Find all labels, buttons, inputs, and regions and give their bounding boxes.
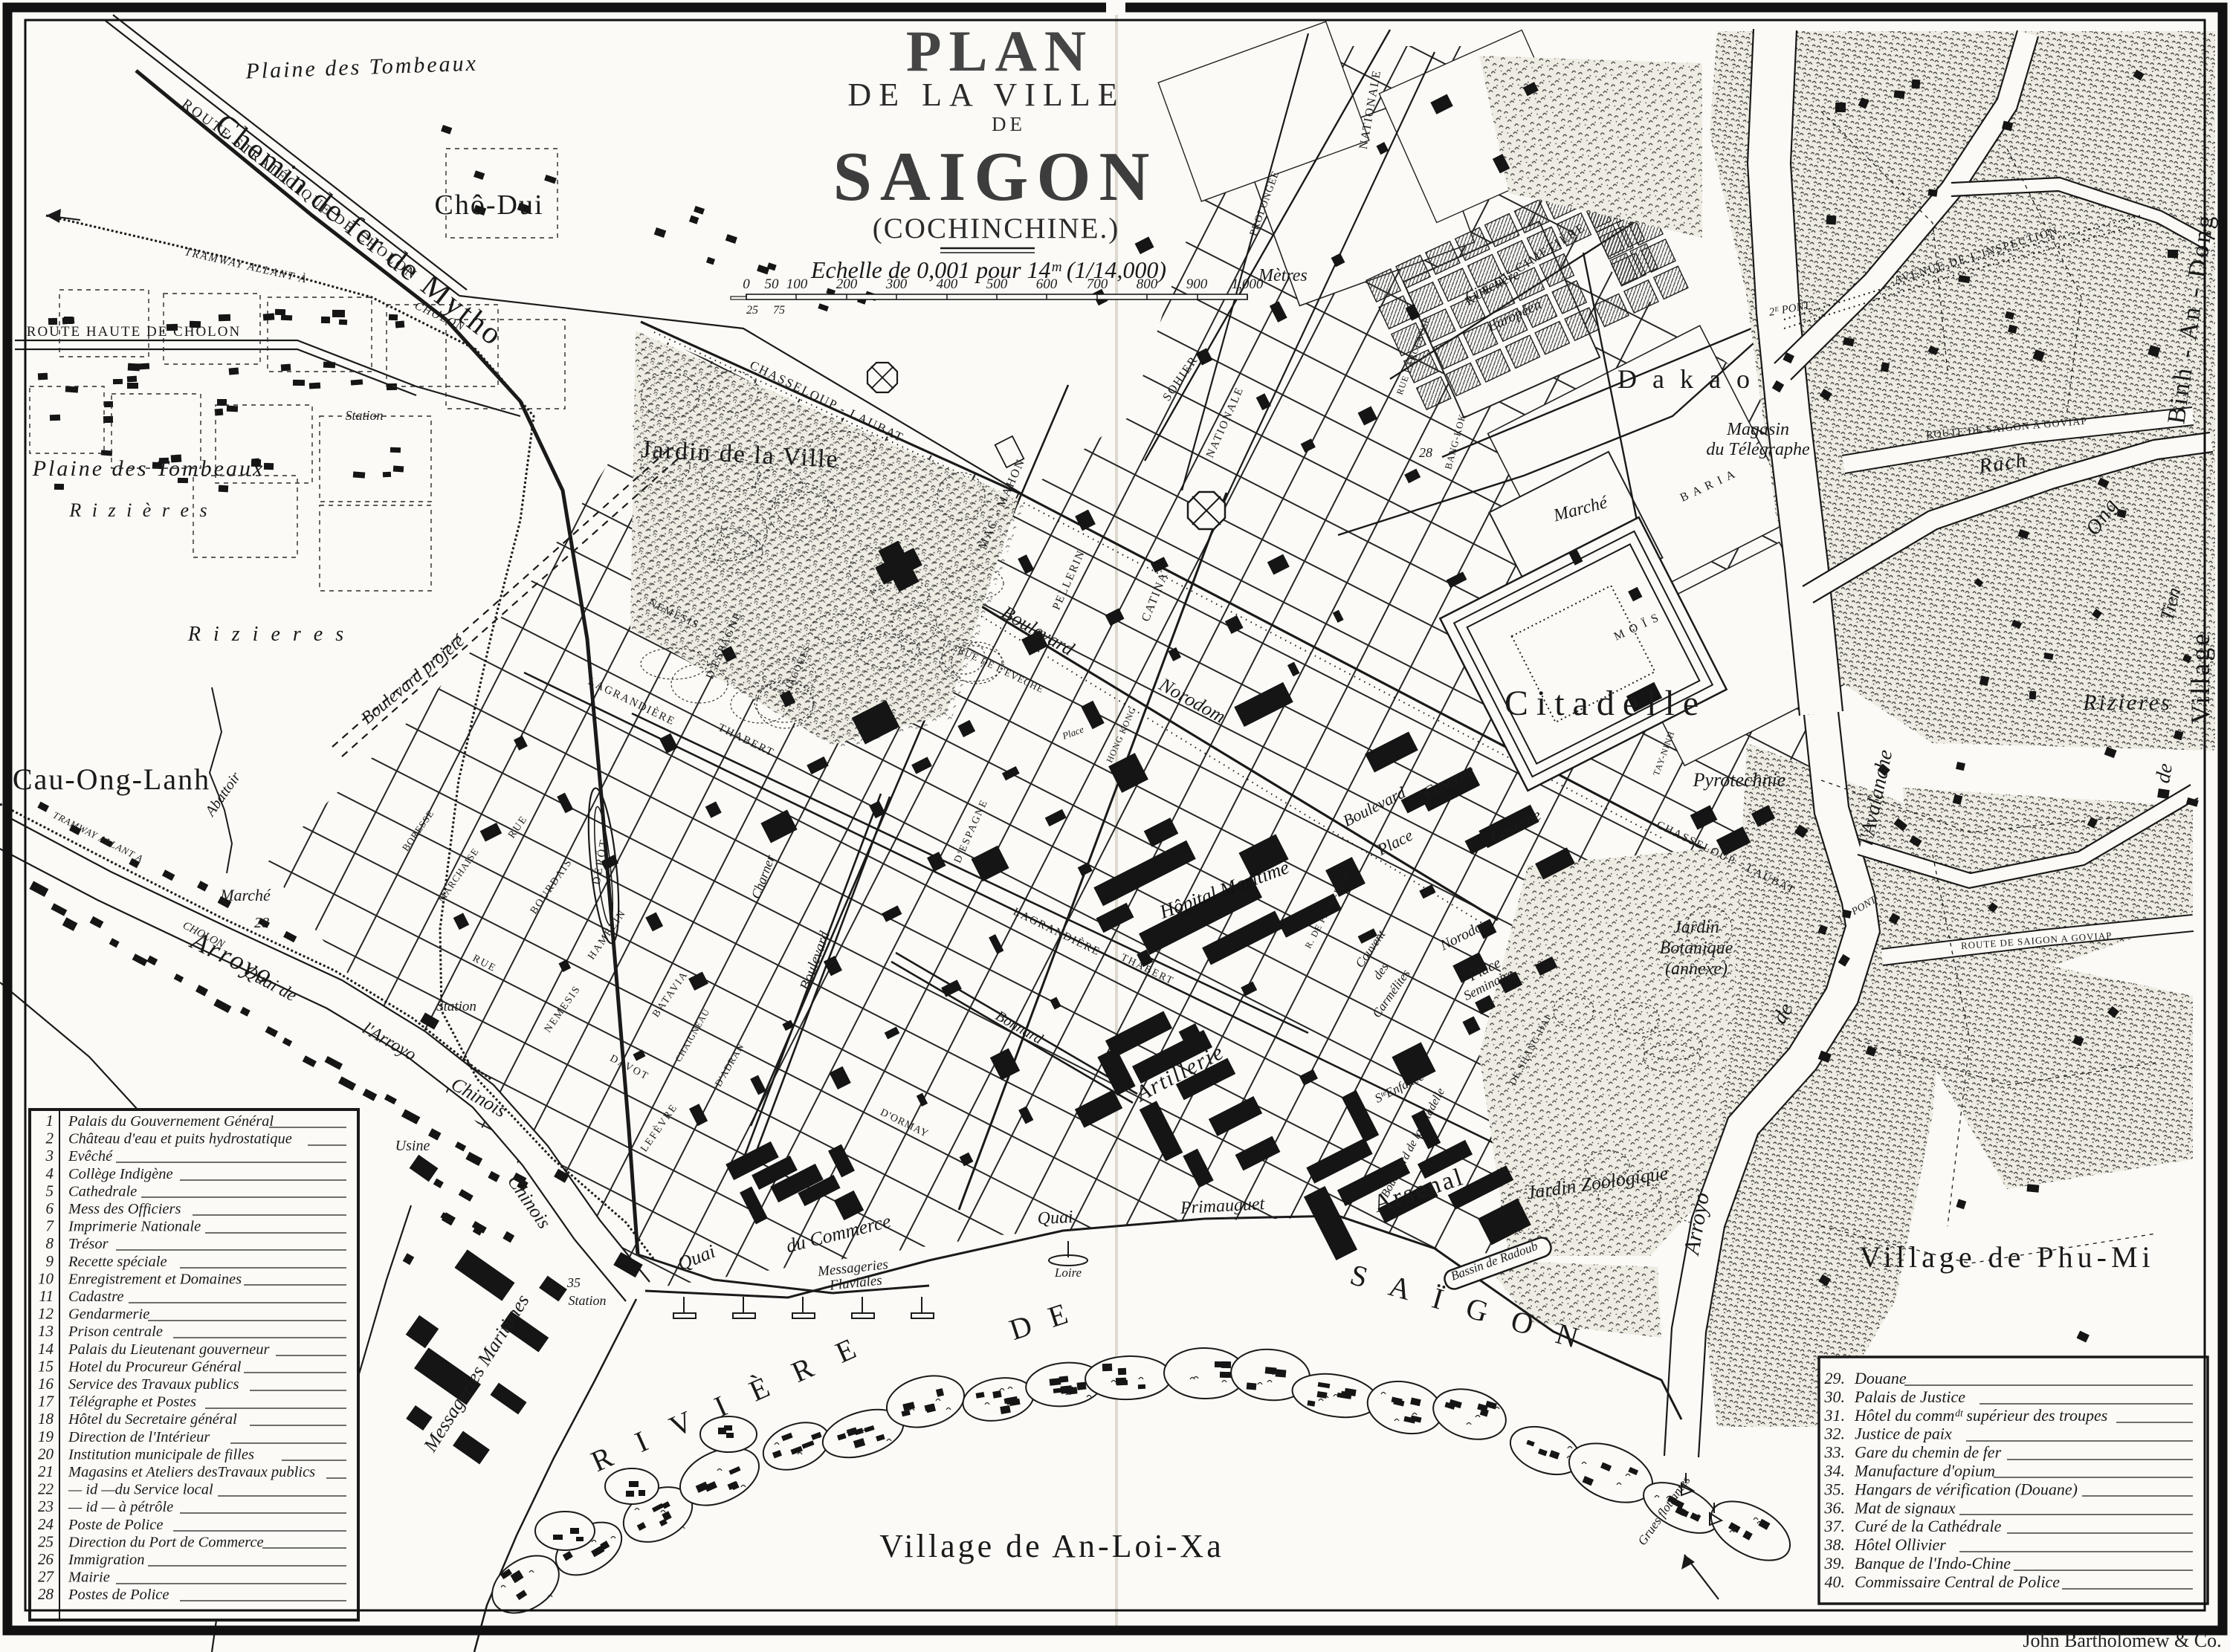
svg-text:5: 5 — [46, 1182, 54, 1199]
svg-text:12: 12 — [38, 1305, 54, 1323]
svg-text:17: 17 — [38, 1393, 55, 1410]
svg-text:700: 700 — [1087, 276, 1108, 292]
svg-text:John Bartholomew & Co.: John Bartholomew & Co. — [2023, 1630, 2221, 1651]
svg-text:16: 16 — [38, 1375, 54, 1393]
svg-text:Village de Phu-Mi: Village de Phu-Mi — [1859, 1240, 2154, 1274]
svg-text:Usine: Usine — [395, 1138, 430, 1154]
svg-text:Hôtel Ollivier: Hôtel Ollivier — [1854, 1535, 1946, 1554]
svg-text:100: 100 — [786, 276, 808, 292]
svg-text:Hôtel du Secretaire général: Hôtel du Secretaire général — [68, 1411, 237, 1428]
svg-text:D a k a o: D a k a o — [1617, 364, 1754, 394]
svg-text:— id —du Service local: — id —du Service local — [68, 1482, 213, 1498]
svg-text:Loire: Loire — [1054, 1266, 1082, 1280]
svg-text:38.: 38. — [1824, 1535, 1846, 1554]
svg-text:32.: 32. — [1824, 1425, 1846, 1443]
svg-text:28: 28 — [38, 1585, 54, 1603]
svg-text:Plaine des Tombeaux: Plaine des Tombeaux — [32, 456, 265, 481]
svg-text:30.: 30. — [1824, 1387, 1846, 1406]
svg-text:39.: 39. — [1824, 1554, 1846, 1572]
svg-text:Village de An-Loi-Xa: Village de An-Loi-Xa — [879, 1528, 1224, 1564]
svg-text:Palais du Gouvernement Général: Palais du Gouvernement Général — [68, 1113, 274, 1130]
svg-text:Village: Village — [2185, 632, 2215, 725]
svg-text:7: 7 — [46, 1217, 55, 1235]
svg-text:Service des Travaux publics: Service des Travaux publics — [68, 1376, 239, 1393]
svg-text:Postes de Police: Postes de Police — [68, 1587, 169, 1603]
svg-text:(annexe): (annexe) — [1665, 959, 1728, 979]
svg-text:Station: Station — [568, 1293, 606, 1308]
svg-text:Rizieres: Rizieres — [2082, 690, 2172, 715]
svg-text:PLAN: PLAN — [906, 19, 1093, 83]
svg-text:Télégraphe et Postes: Télégraphe et Postes — [68, 1394, 196, 1410]
svg-text:Curé de la Cathédrale: Curé de la Cathédrale — [1855, 1517, 2002, 1535]
svg-text:Palais du Lieutenant gouverneu: Palais du Lieutenant gouverneur — [68, 1341, 270, 1358]
svg-text:4: 4 — [46, 1165, 54, 1182]
svg-text:Poste de Police: Poste de Police — [68, 1517, 164, 1533]
svg-text:Evêché: Evêché — [68, 1148, 113, 1165]
svg-text:Hotel du Procureur Général: Hotel du Procureur Général — [68, 1358, 242, 1375]
svg-text:28: 28 — [1419, 445, 1432, 460]
svg-text:800: 800 — [1137, 276, 1158, 292]
svg-text:600: 600 — [1036, 276, 1058, 292]
svg-text:(COCHINCHINE.): (COCHINCHINE.) — [873, 213, 1119, 244]
svg-text:Pyrotechnie: Pyrotechnie — [1693, 769, 1786, 791]
svg-text:R i z i è r e s: R i z i è r e s — [68, 499, 210, 521]
svg-text:Quai: Quai — [1037, 1208, 1073, 1228]
svg-text:Mat de signaux: Mat de signaux — [1854, 1498, 1956, 1517]
svg-text:2: 2 — [46, 1130, 54, 1147]
svg-text:Station: Station — [345, 408, 383, 423]
svg-text:29.: 29. — [1825, 1369, 1846, 1387]
svg-text:35.: 35. — [1824, 1480, 1846, 1498]
svg-text:20: 20 — [38, 1445, 54, 1462]
svg-text:Commissaire Central de Police: Commissaire Central de Police — [1855, 1572, 2060, 1591]
svg-text:Prison centrale: Prison centrale — [68, 1324, 163, 1340]
svg-text:19: 19 — [38, 1428, 54, 1445]
svg-text:Botanique: Botanique — [1660, 939, 1733, 958]
svg-text:900: 900 — [1186, 276, 1208, 292]
svg-text:18: 18 — [38, 1410, 54, 1428]
svg-text:25: 25 — [746, 304, 758, 317]
svg-text:28: 28 — [254, 915, 269, 931]
svg-text:35: 35 — [566, 1275, 581, 1290]
svg-text:Hôtel du commᵈᵗ supérieur des: Hôtel du commᵈᵗ supérieur des troupes — [1854, 1406, 2107, 1425]
svg-text:Cathedrale: Cathedrale — [68, 1183, 137, 1199]
svg-text:13: 13 — [38, 1322, 54, 1340]
svg-text:Collège Indigène: Collège Indigène — [68, 1166, 173, 1182]
svg-text:du Télégraphe: du Télégraphe — [1706, 440, 1810, 459]
svg-text:DE LA VILLE: DE LA VILLE — [847, 77, 1125, 113]
svg-text:26: 26 — [38, 1550, 54, 1568]
svg-text:200: 200 — [836, 276, 858, 292]
svg-text:Citadelle: Citadelle — [1505, 684, 1707, 723]
svg-text:Enregistrement et Domaines: Enregistrement et Domaines — [68, 1271, 242, 1287]
svg-text:Gare du chemin de fer: Gare du chemin de fer — [1855, 1443, 2002, 1462]
svg-text:Trésor: Trésor — [68, 1236, 109, 1252]
svg-text:Mètres: Mètres — [1258, 266, 1308, 285]
svg-text:24: 24 — [38, 1515, 54, 1533]
svg-text:300: 300 — [885, 276, 908, 292]
svg-text:27: 27 — [38, 1568, 55, 1586]
svg-text:36.: 36. — [1824, 1498, 1846, 1517]
svg-text:21: 21 — [38, 1462, 54, 1480]
svg-text:Institution municipale de fill: Institution municipale de filles — [68, 1446, 254, 1462]
svg-text:33.: 33. — [1824, 1443, 1846, 1462]
svg-text:Direction du Port de Commerce: Direction du Port de Commerce — [68, 1534, 264, 1550]
svg-text:Station: Station — [436, 999, 476, 1014]
svg-text:40.: 40. — [1825, 1572, 1846, 1591]
svg-text:R i z i e r e s: R i z i e r e s — [187, 623, 347, 646]
svg-text:23: 23 — [38, 1497, 54, 1515]
svg-text:31.: 31. — [1824, 1406, 1846, 1425]
svg-text:Magasins et Ateliers desTravau: Magasins et Ateliers desTravaux publics — [68, 1464, 315, 1480]
svg-text:22: 22 — [38, 1480, 54, 1498]
svg-text:Cadastre: Cadastre — [68, 1289, 123, 1305]
svg-text:0: 0 — [743, 276, 750, 292]
svg-text:Banque de l'Indo-Chine: Banque de l'Indo-Chine — [1855, 1554, 2011, 1572]
svg-text:DE: DE — [992, 113, 1026, 135]
svg-text:Marché: Marché — [219, 886, 271, 904]
svg-text:6: 6 — [46, 1199, 54, 1217]
svg-text:Magasin: Magasin — [1726, 420, 1789, 439]
svg-text:Cau-Ong-Lanh: Cau-Ong-Lanh — [13, 762, 210, 796]
svg-text:Chô-Dui: Chô-Dui — [435, 190, 544, 221]
svg-text:Gendarmerie: Gendarmerie — [68, 1306, 149, 1323]
svg-text:10: 10 — [38, 1269, 54, 1287]
svg-text:Recette spéciale: Recette spéciale — [68, 1254, 167, 1270]
svg-text:25: 25 — [38, 1532, 54, 1550]
svg-text:Douane: Douane — [1854, 1369, 1907, 1387]
svg-text:Palais de Justice: Palais de Justice — [1854, 1387, 1965, 1406]
svg-text:75: 75 — [773, 304, 785, 317]
svg-text:ROUTE HAUTE DE CHOLON: ROUTE HAUTE DE CHOLON — [27, 324, 241, 340]
svg-text:Jardin: Jardin — [1673, 918, 1719, 937]
svg-text:Imprimerie Nationale: Imprimerie Nationale — [68, 1219, 201, 1235]
svg-text:Manufacture d'opium: Manufacture d'opium — [1854, 1462, 1995, 1480]
svg-text:15: 15 — [38, 1357, 54, 1375]
svg-text:3: 3 — [45, 1147, 54, 1165]
svg-text:37.: 37. — [1824, 1517, 1846, 1535]
svg-text:1: 1 — [46, 1112, 54, 1130]
svg-text:400: 400 — [937, 276, 958, 292]
svg-text:14: 14 — [38, 1340, 54, 1358]
svg-text:Château d'eau et puits hydrost: Château d'eau et puits hydrostatique — [68, 1131, 292, 1147]
svg-text:de: de — [2151, 762, 2177, 785]
svg-text:— id — à pétrôle: — id — à pétrôle — [68, 1499, 173, 1515]
svg-text:Immigration: Immigration — [68, 1552, 145, 1568]
svg-text:Hangars de vérification (Douan: Hangars de vérification (Douane) — [1854, 1480, 2078, 1498]
svg-text:8: 8 — [46, 1234, 54, 1252]
svg-text:Direction de l'Intérieur: Direction de l'Intérieur — [68, 1429, 210, 1445]
svg-text:Justice de paix: Justice de paix — [1855, 1425, 1952, 1443]
svg-text:11: 11 — [39, 1287, 54, 1305]
svg-text:SAIGON: SAIGON — [833, 138, 1158, 216]
svg-text:500: 500 — [986, 276, 1008, 292]
svg-text:9: 9 — [46, 1252, 54, 1270]
svg-text:Mess des Officiers: Mess des Officiers — [68, 1201, 181, 1217]
svg-text:50: 50 — [765, 276, 780, 292]
svg-text:Mairie: Mairie — [68, 1570, 110, 1586]
svg-text:34.: 34. — [1824, 1462, 1846, 1480]
